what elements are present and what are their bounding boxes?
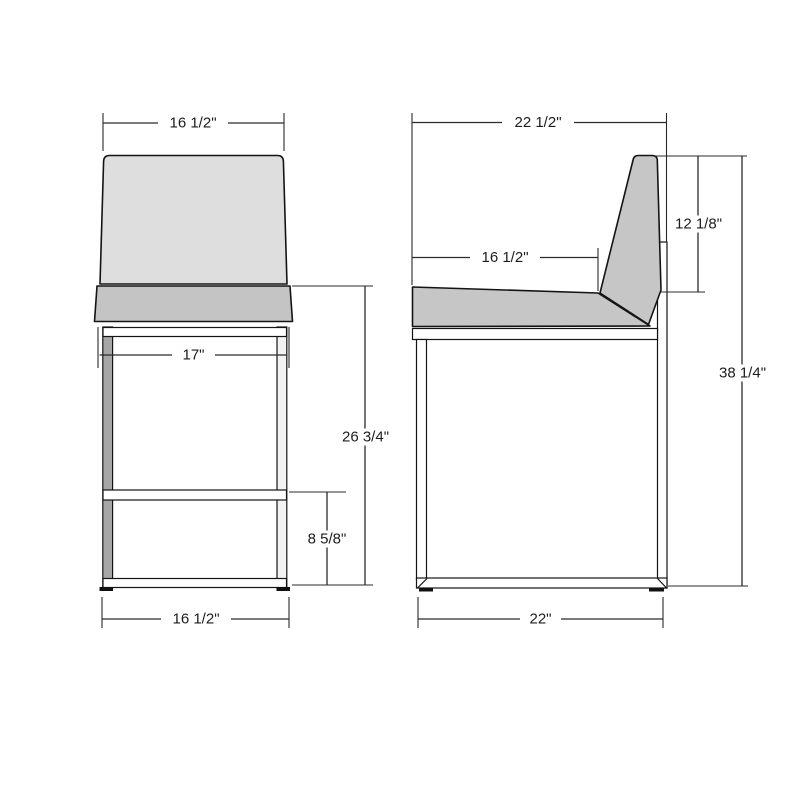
drawing-page: 16 1/2" 17" 26 3/4" 8 5/8" [0, 0, 800, 800]
side-dimensions: 22 1/2" 16 1/2" 12 1/8" 38 1/4" [412, 113, 772, 628]
dim-front-base-width: 16 1/2" [102, 597, 289, 628]
front-right-leg [277, 327, 287, 588]
dim-label-side-overall-height: 38 1/4" [719, 364, 766, 381]
front-footrest-bar [103, 490, 287, 500]
side-front-foot [419, 588, 433, 592]
dim-label-side-overall-depth: 22 1/2" [514, 114, 561, 131]
dim-label-side-seat-depth: 16 1/2" [481, 249, 528, 266]
dim-label-side-base-depth: 22" [529, 610, 551, 627]
front-view [95, 156, 293, 592]
stool-technical-drawing: 16 1/2" 17" 26 3/4" 8 5/8" [0, 0, 800, 800]
front-bottom-rail [103, 579, 287, 588]
front-left-leg [103, 327, 113, 588]
side-bottom-rail [417, 578, 668, 588]
dim-side-base-depth: 22" [418, 597, 663, 628]
dim-label-front-seat-height: 26 3/4" [342, 428, 389, 445]
dim-front-top-width: 16 1/2" [103, 113, 284, 151]
dim-label-front-top-width: 16 1/2" [169, 114, 216, 131]
dim-label-front-footrest-height: 8 5/8" [308, 530, 347, 547]
side-under-seat-rail [413, 329, 658, 340]
front-under-seat-rail [103, 328, 287, 337]
side-backrest [600, 156, 661, 325]
dim-label-front-base-width: 16 1/2" [172, 610, 219, 627]
front-left-foot [100, 587, 114, 591]
side-back-foot [649, 588, 664, 592]
dim-label-side-backrest-height: 12 1/8" [675, 215, 722, 232]
dim-front-footrest-height: 8 5/8" [289, 492, 354, 585]
side-front-leg [417, 340, 427, 580]
dim-side-seat-depth: 16 1/2" [413, 248, 599, 291]
dim-side-backrest-height: 12 1/8" [655, 156, 747, 292]
front-seat [95, 286, 293, 322]
dim-label-front-leg-span: 17" [182, 346, 204, 363]
front-backrest [100, 156, 287, 285]
front-right-foot [277, 587, 291, 591]
side-view [413, 156, 668, 592]
